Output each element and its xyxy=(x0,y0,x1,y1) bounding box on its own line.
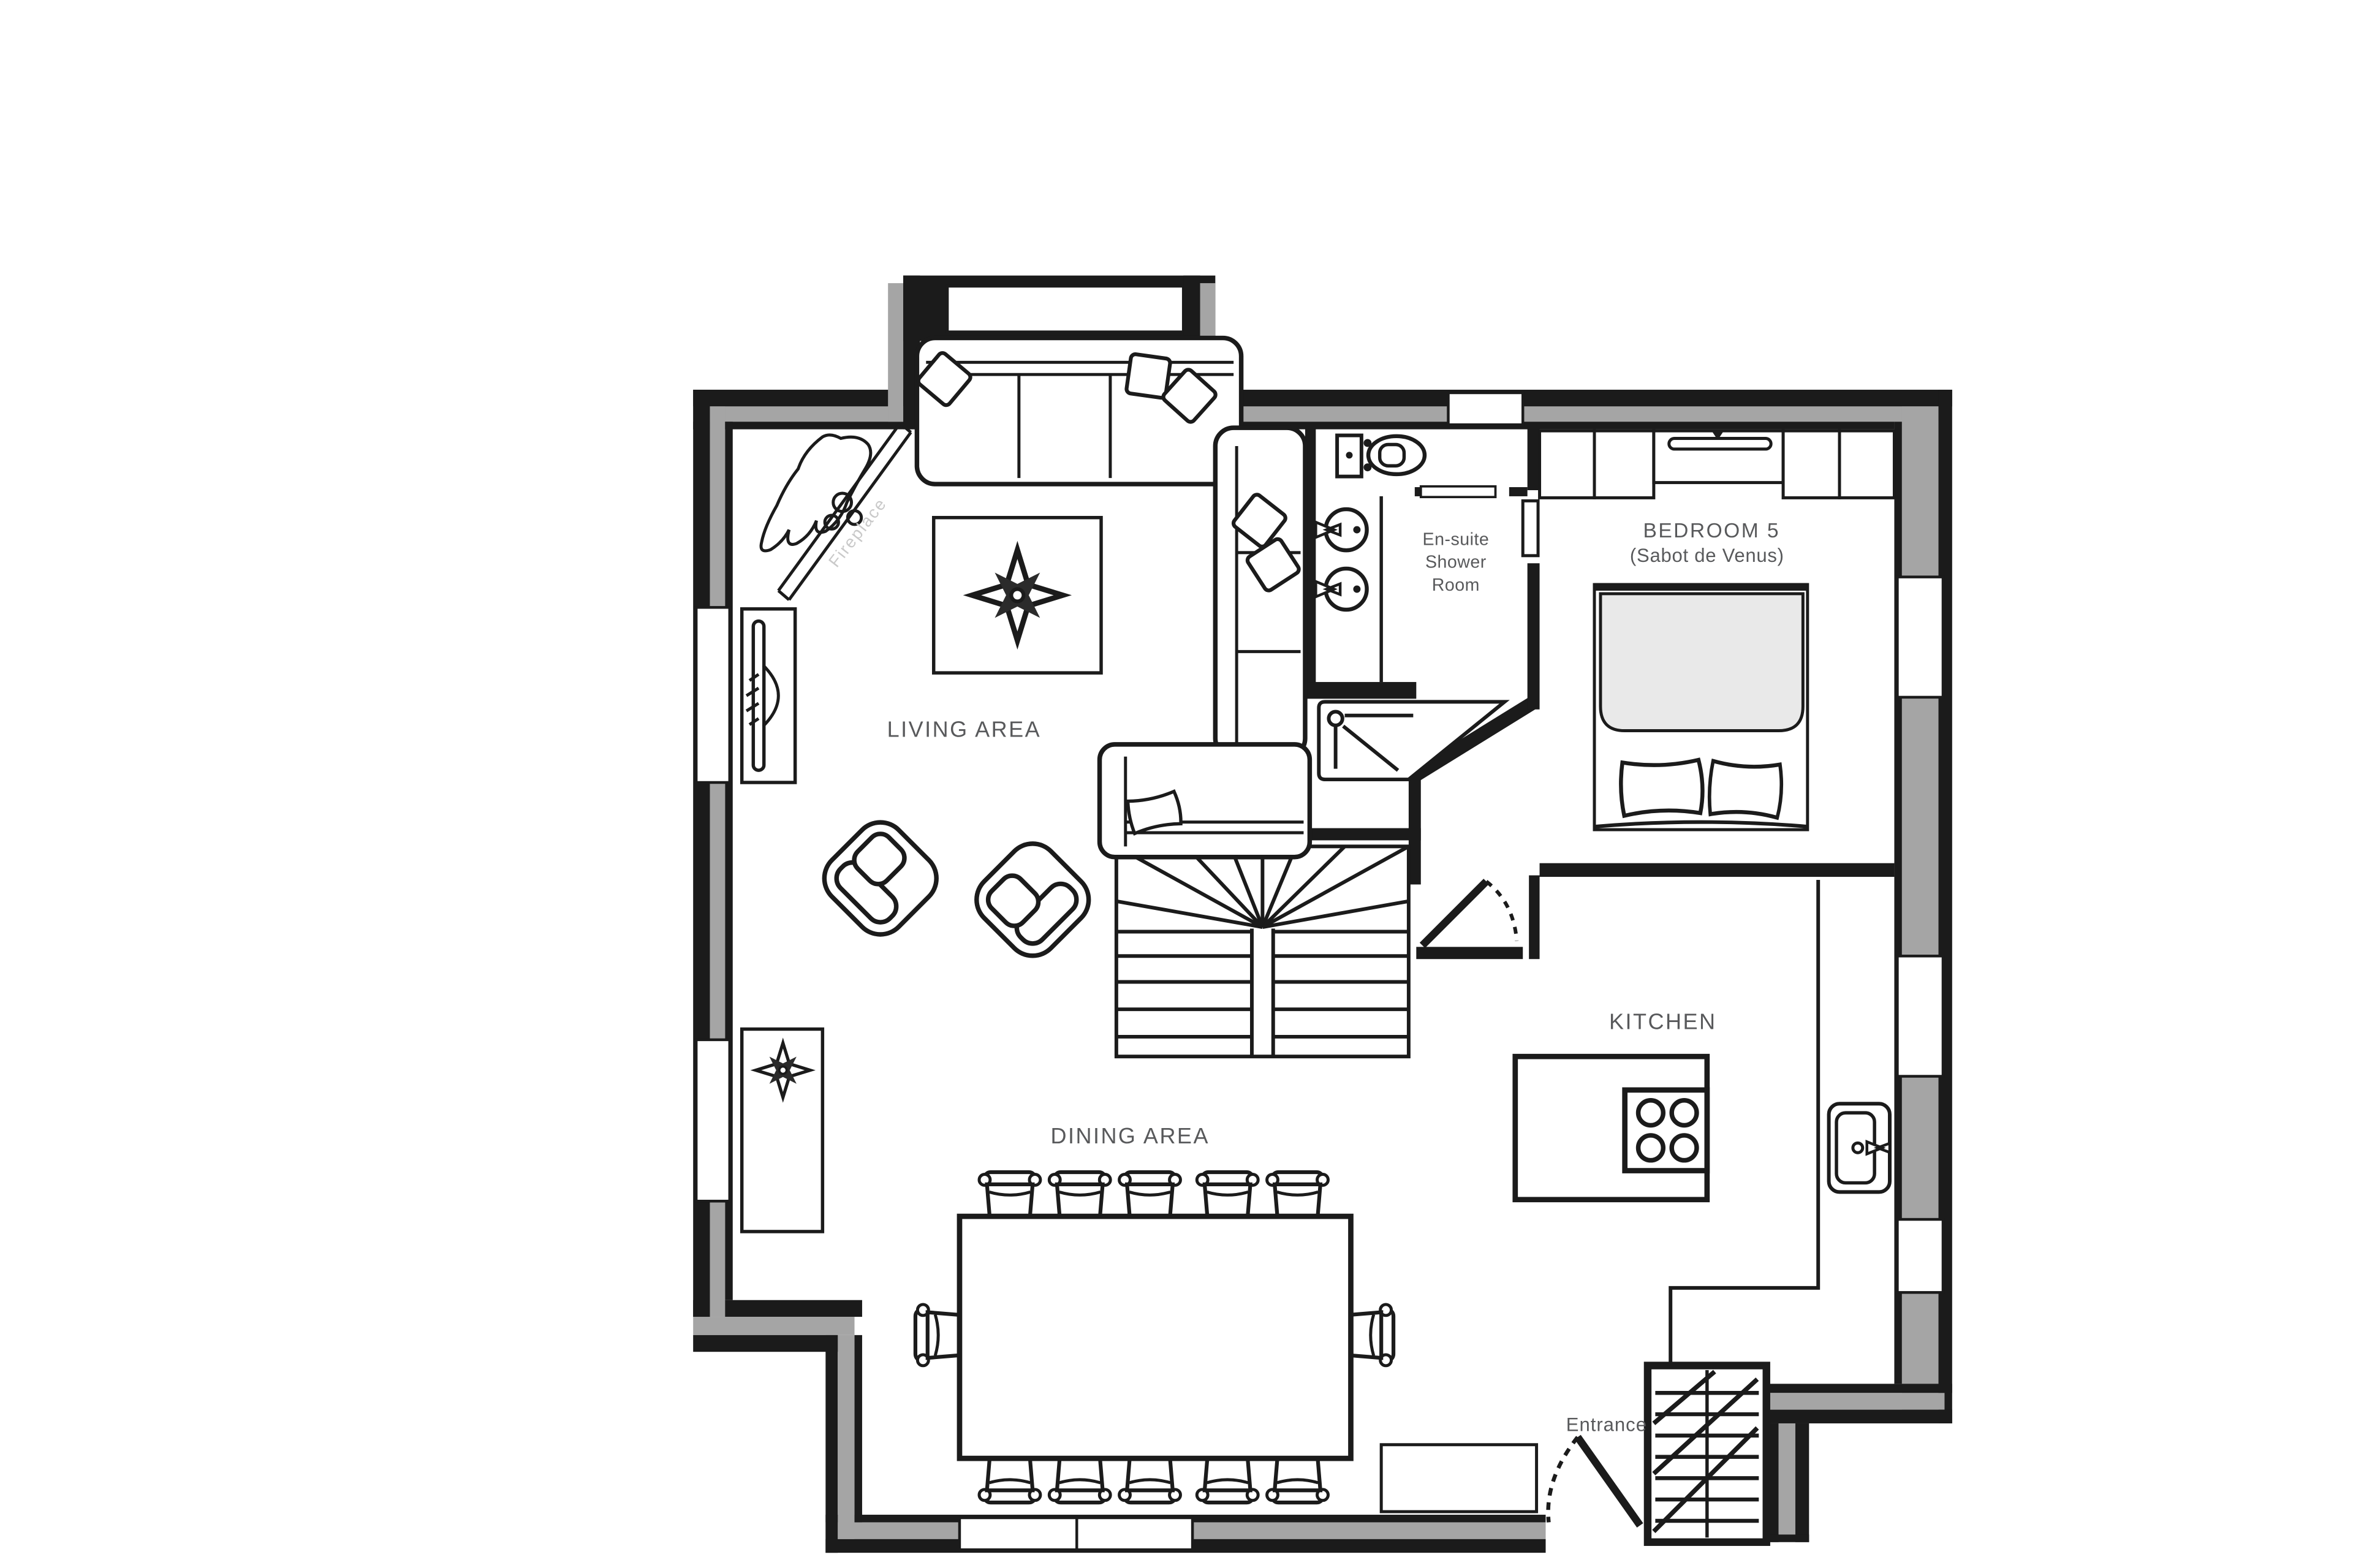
entrance-steps-icon xyxy=(1648,1366,1767,1542)
bedroom-sublabel: (Sabot de Venus) xyxy=(1630,545,1784,566)
shower-door-leaf xyxy=(1523,501,1538,555)
living-area-label: LIVING AREA xyxy=(887,716,1042,741)
right-window-2 xyxy=(1897,956,1943,1076)
ensuite-label-2: Shower xyxy=(1425,553,1487,572)
kitchen-label: KITCHEN xyxy=(1609,1009,1716,1034)
bedroom-bottom-wall xyxy=(1540,863,1895,877)
ensuite-label-3: Room xyxy=(1432,575,1480,595)
armchair-icon xyxy=(966,833,1099,966)
basin-icon xyxy=(1316,569,1366,610)
sink-icon xyxy=(1829,1104,1890,1192)
stairs-top-wall xyxy=(1309,828,1420,841)
wardrobe xyxy=(1540,431,1895,498)
bedroom-label: BEDROOM 5 xyxy=(1643,520,1780,542)
dining-area-label: DINING AREA xyxy=(1050,1123,1209,1148)
left-window-2 xyxy=(696,1040,730,1201)
right-window-3 xyxy=(1897,1219,1943,1292)
kitchen-top-wall xyxy=(1416,947,1523,959)
entrance-mat xyxy=(1381,1445,1536,1512)
bedroom-left-wall-upper xyxy=(1528,428,1540,490)
armchair-icon xyxy=(814,812,947,945)
dining-set xyxy=(915,1172,1393,1502)
sideboard xyxy=(742,1029,823,1231)
basin-icon xyxy=(1316,509,1366,550)
entrance-label: Entrance xyxy=(1566,1414,1647,1435)
kitchen-units xyxy=(1515,880,1890,1384)
left-window-1 xyxy=(696,607,730,782)
entrance-door xyxy=(1548,1437,1640,1525)
bedroom-furniture xyxy=(1540,431,1895,830)
bay-window xyxy=(947,286,1183,332)
shower-room-bottom-wall xyxy=(1305,682,1416,699)
right-window-1 xyxy=(1897,577,1943,697)
bay-gray-left xyxy=(888,283,903,422)
bed-pillow-icon xyxy=(1620,760,1703,816)
bedroom-hall-wall xyxy=(1529,876,1539,960)
ensuite-label-1: En-suite xyxy=(1423,529,1490,549)
console-table xyxy=(742,609,795,782)
rug xyxy=(934,518,1101,673)
floor-plan: LIVING AREA DINING AREA KITCHEN BEDROOM … xyxy=(0,0,2353,1568)
bedroom-left-wall-lower xyxy=(1528,563,1540,710)
hob-icon xyxy=(1625,1090,1707,1171)
bed-icon xyxy=(1594,585,1808,830)
fireplace-icon xyxy=(761,423,911,600)
floor-plan-svg: LIVING AREA DINING AREA KITCHEN BEDROOM … xyxy=(0,0,2353,1568)
toilet-icon xyxy=(1337,436,1425,477)
bed-pillow-icon xyxy=(1708,761,1783,818)
stairs-icon xyxy=(1116,846,1409,1056)
dining-table xyxy=(960,1216,1351,1458)
kitchen-door xyxy=(1422,882,1517,945)
top-window xyxy=(1448,393,1523,425)
